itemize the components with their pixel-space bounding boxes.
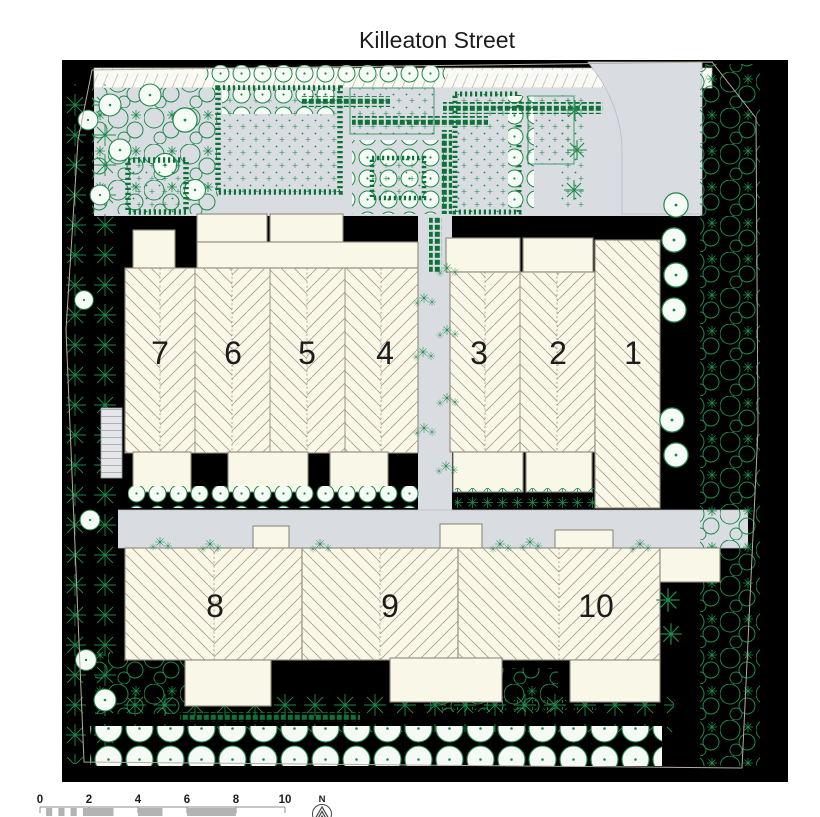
right-tree-border xyxy=(700,64,760,766)
bottom-tree-row xyxy=(90,726,662,766)
scale-label-8: 8 xyxy=(233,794,240,806)
site-plan-drawing: Killeaton Street xyxy=(0,0,820,817)
unit-label-7: 7 xyxy=(151,335,169,371)
unit-label-10: 10 xyxy=(578,588,614,624)
unit-label-5: 5 xyxy=(298,335,316,371)
unit-label-4: 4 xyxy=(376,335,394,371)
unit-label-3: 3 xyxy=(470,335,488,371)
unit-label-9: 9 xyxy=(381,588,399,624)
north-label: N xyxy=(319,794,326,805)
stairs xyxy=(101,408,122,478)
scale-label-6: 6 xyxy=(184,794,190,806)
building-block-upper-right xyxy=(446,238,660,508)
north-arrow-icon: N xyxy=(313,794,332,817)
scale-bar: 0 2 4 6 8 10 xyxy=(37,794,292,816)
unit-label-8: 8 xyxy=(206,588,224,624)
unit-label-6: 6 xyxy=(224,335,242,371)
scale-label-4: 4 xyxy=(135,794,142,806)
street-title: Killeaton Street xyxy=(359,27,516,53)
scale-label-0: 0 xyxy=(37,794,43,806)
unit-label-1: 1 xyxy=(624,335,642,371)
scale-label-10: 10 xyxy=(279,794,292,806)
bottom-hedge-row xyxy=(180,712,360,722)
central-driveway xyxy=(118,510,748,548)
scale-label-2: 2 xyxy=(86,794,92,806)
unit-label-2: 2 xyxy=(549,335,567,371)
